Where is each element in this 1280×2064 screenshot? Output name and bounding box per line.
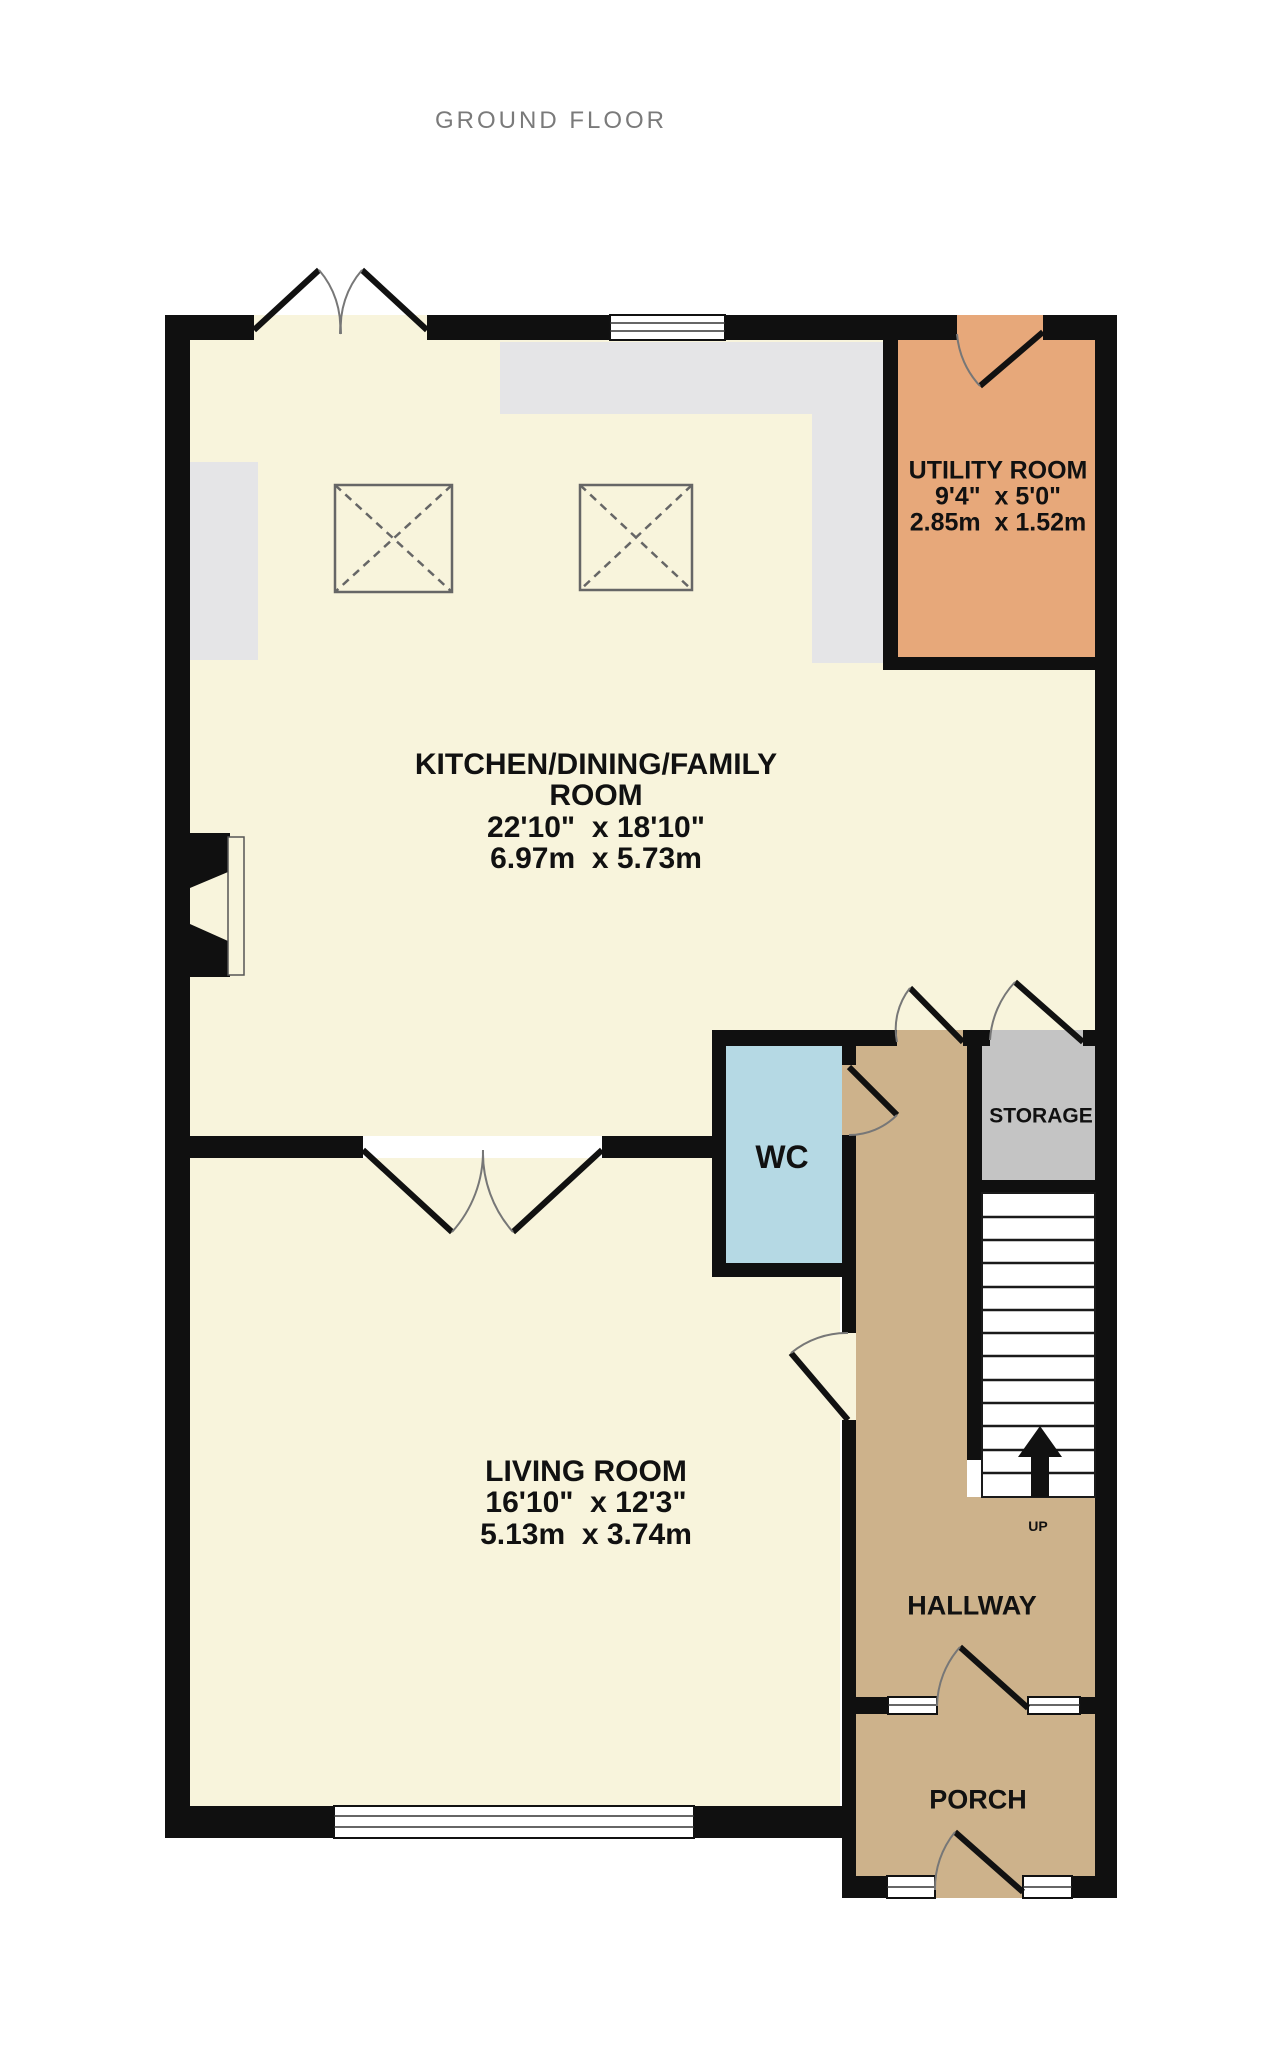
kitchen-dimensions-imperial: 22'10" x 18'10" <box>487 813 705 843</box>
sidelight-icon <box>888 1697 937 1714</box>
living-room-dimensions-metric: 5.13m x 3.74m <box>480 1520 692 1550</box>
counter-right <box>812 414 883 663</box>
utility-dimensions-imperial: 9'4" x 5'0" <box>935 485 1061 510</box>
wc-label: WC <box>755 1141 808 1173</box>
sidelight-icon <box>887 1876 935 1898</box>
window-icon <box>334 1806 694 1838</box>
kitchen-dimensions-metric: 6.97m x 5.73m <box>490 844 702 874</box>
counter-left <box>190 462 258 660</box>
utility-dimensions-metric: 2.85m x 1.52m <box>910 511 1087 536</box>
utility-label: UTILITY ROOM <box>909 459 1088 484</box>
kitchen-label: KITCHEN/DINING/FAMILY <box>415 750 777 780</box>
storage-label: STORAGE <box>989 1106 1092 1127</box>
utility-door-opening <box>957 315 1043 340</box>
room-floors <box>190 315 1095 1898</box>
sidelight-icon <box>1023 1876 1072 1898</box>
sidelight-icon <box>1028 1697 1080 1714</box>
living-door-opening <box>840 1333 856 1420</box>
staircase <box>982 1193 1095 1497</box>
window-icon <box>610 315 725 340</box>
floor-plan: GROUND FLOOR KITCHEN/DINING/FAMILY ROOM … <box>0 0 1280 2064</box>
hallway-label: HALLWAY <box>907 1593 1037 1620</box>
floor-plan-drawing <box>0 0 1280 2064</box>
porch-label: PORCH <box>929 1787 1027 1814</box>
kitchen-label-2: ROOM <box>549 781 642 811</box>
stairs-up-label: UP <box>1028 1519 1047 1533</box>
page-title: GROUND FLOOR <box>435 109 667 133</box>
living-room-dimensions-imperial: 16'10" x 12'3" <box>485 1488 686 1518</box>
counter-top <box>500 342 883 414</box>
living-room-label: LIVING ROOM <box>485 1457 687 1487</box>
